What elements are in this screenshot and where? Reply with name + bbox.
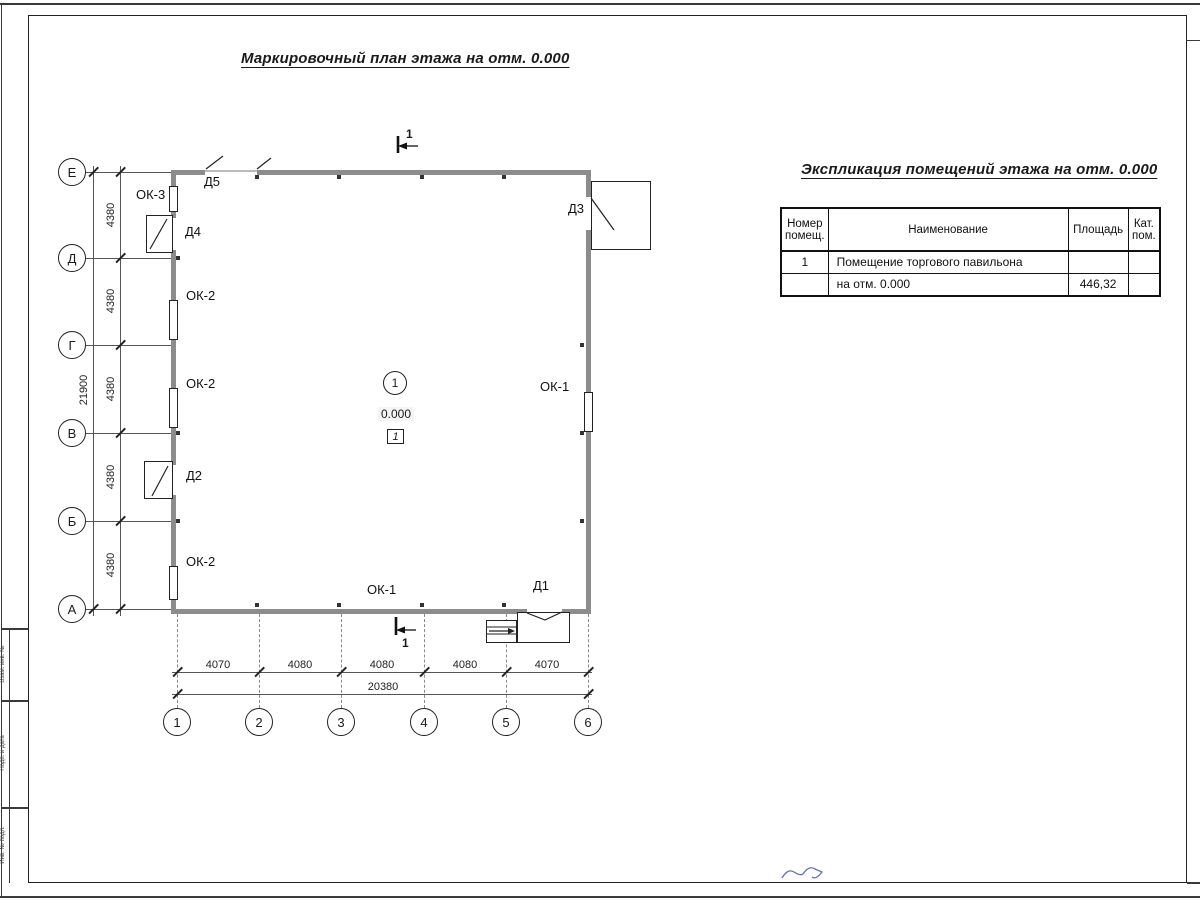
section-label-top: 1 [406, 127, 413, 141]
label-ok1-bottom: ОК-1 [367, 582, 396, 597]
door-leaf-d4 [150, 219, 167, 249]
label-ok2-bottom: ОК-2 [186, 554, 215, 569]
label-d1: Д1 [533, 578, 549, 593]
section-arrowhead-bottom [396, 627, 405, 634]
door-leaf-d3 [591, 198, 614, 230]
label-d3: Д3 [568, 201, 584, 216]
section-arrowhead-top [398, 143, 407, 150]
door-leaf-d5-left [206, 156, 223, 169]
steps-arrowhead [508, 628, 515, 634]
elevation-mark: 0.000 [378, 407, 414, 421]
label-ok2-mid: ОК-2 [186, 376, 215, 391]
door-leaf-d5-right [257, 158, 271, 169]
room-number-bubble: 1 [383, 371, 407, 395]
signature-squiggle [782, 868, 822, 878]
label-ok2-top: ОК-2 [186, 288, 215, 303]
drawing-sheet: Взам. инв. № Подп. и дата Инв. № подл. М… [0, 0, 1200, 900]
label-d5: Д5 [204, 174, 220, 189]
label-ok1-right: ОК-1 [540, 379, 569, 394]
section-label-bottom: 1 [402, 636, 409, 650]
label-d4: Д4 [185, 224, 201, 239]
door-leaf-d2 [152, 466, 168, 496]
label-d2: Д2 [186, 468, 202, 483]
label-ok3: ОК-3 [136, 187, 165, 202]
door-leaf-d1 [527, 612, 562, 620]
floor-type-mark: 1 [387, 429, 404, 444]
plan-linework [0, 0, 1200, 900]
